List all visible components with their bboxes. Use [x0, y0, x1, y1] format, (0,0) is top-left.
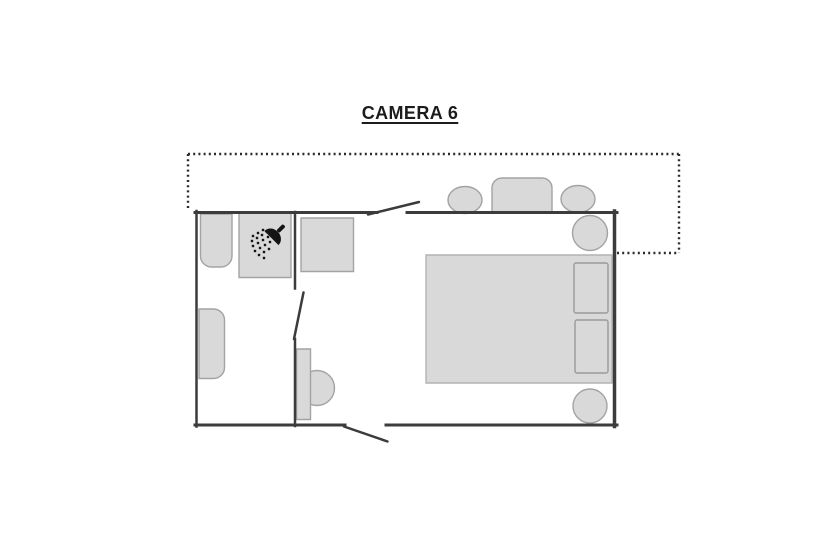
shower-spray-dot — [269, 241, 271, 243]
floor-plan-page: CAMERA 6 — [0, 0, 820, 560]
pillow-top — [574, 263, 608, 313]
shower-spray-dot — [258, 254, 260, 256]
pillow-bottom — [575, 320, 608, 373]
shower-spray-dot — [254, 250, 256, 252]
terrace-chair-left — [448, 187, 482, 214]
bedside-table-top — [573, 216, 608, 251]
washbasin — [201, 214, 233, 267]
bedside-table-bottom — [573, 389, 607, 423]
shower-spray-dot — [263, 251, 265, 253]
shower-spray-dot — [259, 247, 261, 249]
shower-spray-dot — [267, 236, 269, 238]
shower-spray-dot — [268, 248, 270, 250]
shower-spray-dot — [252, 235, 254, 237]
terrace-table — [492, 178, 552, 213]
shower-spray-dot — [252, 245, 254, 247]
desk — [297, 349, 311, 420]
shower-spray-dot — [262, 229, 264, 231]
shower-spray-dot — [257, 242, 259, 244]
shower-spray-dot — [266, 231, 268, 233]
shower-spray-dot — [263, 257, 265, 259]
shower-spray-dot — [262, 239, 264, 241]
shower-spray-dot — [261, 234, 263, 236]
floor-plan-canvas — [0, 0, 820, 560]
shower-spray-dot — [264, 244, 266, 246]
toilet — [199, 309, 225, 379]
shower-spray-dot — [256, 237, 258, 239]
terrace-chair-right — [561, 186, 595, 213]
bathroom-door-leaf — [294, 293, 304, 340]
terrace-door-leaf — [344, 427, 388, 442]
shower-spray-dot — [257, 232, 259, 234]
shower-spray-dot — [251, 240, 253, 242]
media-cabinet — [301, 218, 354, 272]
